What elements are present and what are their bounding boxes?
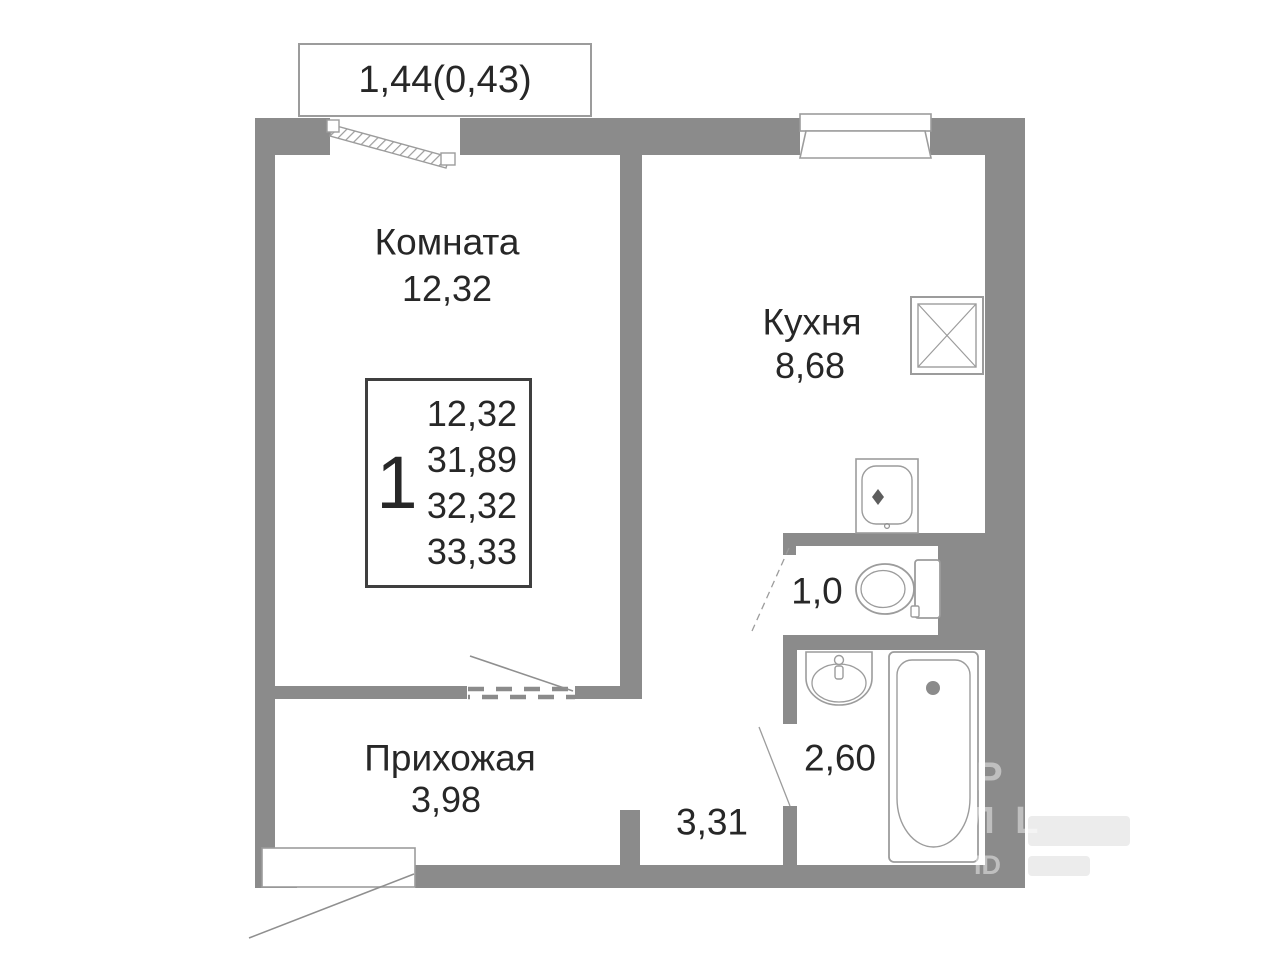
kitchen-window-icon: [800, 114, 931, 158]
door-swing-bathroom-icon: [759, 727, 790, 806]
door-swing-wc-icon: [752, 548, 789, 631]
total-area-value: 33,33: [426, 529, 517, 575]
door-swing-entrance-icon: [249, 848, 415, 938]
watermark-text: ID: [974, 850, 1001, 881]
bathroom-sink-icon: [806, 652, 872, 705]
area-values: 12,32 31,89 32,32 33,33: [426, 391, 529, 575]
room-label-kitchen-area: 8,68: [775, 344, 845, 388]
area-value-2: 31,89: [426, 437, 517, 483]
watermark-text: Л L: [968, 800, 1043, 843]
area-summary-box: 1 12,32 31,89 32,32 33,33: [365, 378, 532, 588]
bathtub-icon: [889, 652, 978, 862]
room-label-living-area: 12,32: [402, 267, 492, 311]
fixtures-layer: [0, 0, 1280, 960]
door-swing-living-icon: [468, 656, 575, 697]
floor-plan-canvas: 1,44(0,43) Комната 12,32 Кухня 8,68 Прих…: [0, 0, 1280, 960]
balcony-dimension-label: 1,44(0,43): [298, 43, 592, 117]
toilet-icon: [856, 560, 940, 618]
room-label-bathroom-area: 2,60: [804, 735, 876, 780]
room-label-hallway-area: 3,98: [411, 778, 481, 822]
room-label-wc-area: 1,0: [791, 568, 842, 613]
area-value-3: 32,32: [426, 483, 517, 529]
balcony-window-icon: [327, 118, 460, 168]
room-label-hallway-name: Прихожая: [364, 735, 535, 780]
kitchen-sink-icon: [856, 459, 918, 533]
room-label-corridor-area: 3,31: [676, 799, 748, 844]
rooms-count: 1: [368, 446, 426, 520]
watermark-text: Р: [976, 755, 1003, 800]
living-area-value: 12,32: [426, 391, 517, 437]
room-label-kitchen-name: Кухня: [762, 299, 861, 344]
vent-shaft-icon: [911, 297, 983, 374]
room-label-living-name: Комната: [375, 219, 520, 264]
